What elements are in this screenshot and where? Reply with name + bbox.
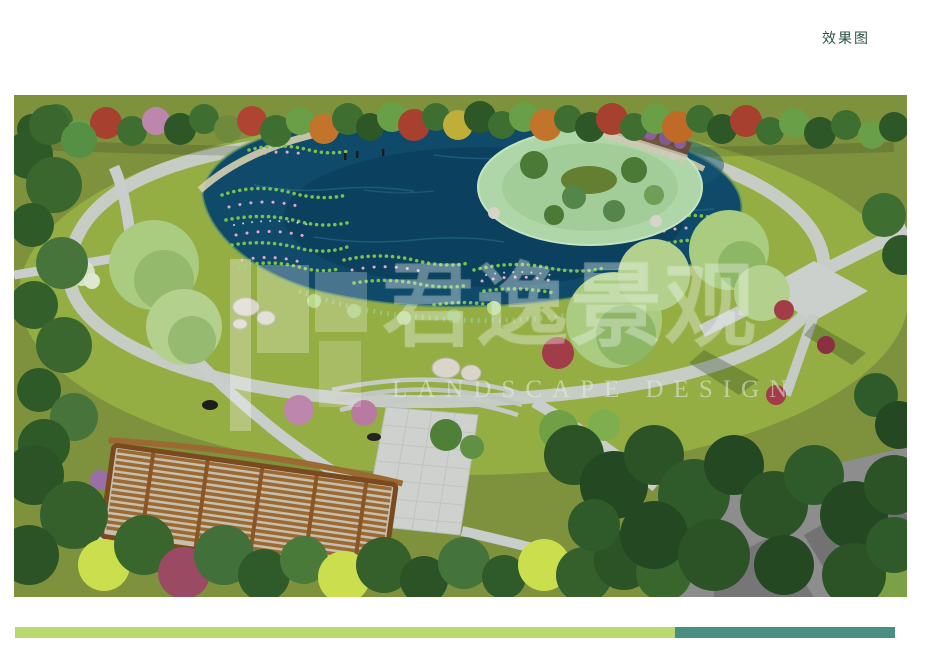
footer-bar-green bbox=[15, 627, 675, 638]
rendering-image: 君逸景观 LANDSCAPE DESIGN bbox=[14, 95, 907, 597]
document-page: 效果图 bbox=[0, 0, 926, 655]
page-title: 效果图 bbox=[822, 28, 870, 48]
landscape-scene bbox=[14, 95, 907, 597]
footer-bars bbox=[0, 627, 926, 638]
footer-bar-teal bbox=[675, 627, 895, 638]
